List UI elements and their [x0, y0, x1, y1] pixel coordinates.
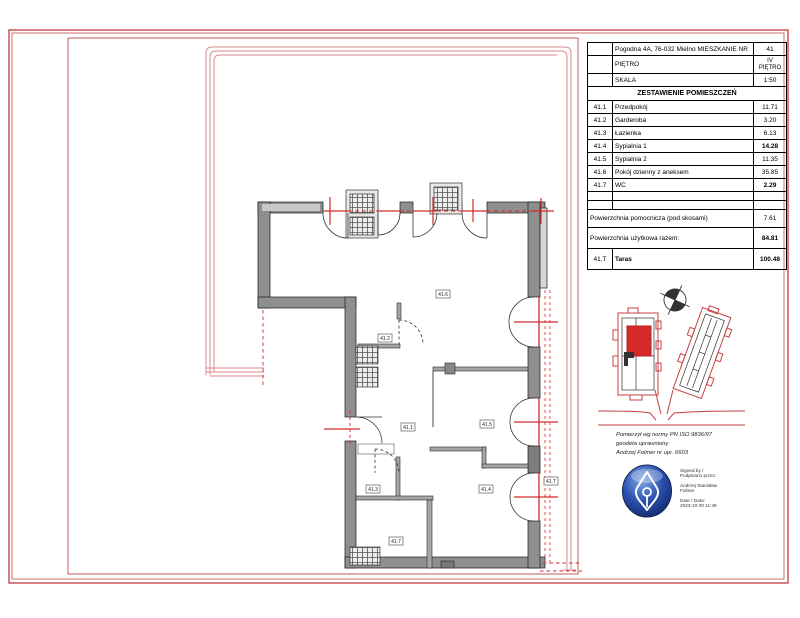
schedule-header: ZESTAWIENIE POMIESZCZEŃ — [588, 87, 787, 101]
row-area: 3.20 — [754, 114, 787, 127]
table-row-empty — [588, 201, 787, 210]
row-no: 41.2 — [588, 114, 613, 127]
scale-label-cell: SKALA — [613, 74, 754, 87]
table-row: 41.5Sypialnia 211.35 — [588, 153, 787, 166]
site-building-current — [613, 308, 661, 400]
terrace-value: 100.48 — [754, 249, 787, 270]
row-no: 41.7 — [588, 179, 613, 192]
scale-value-cell: 1:50 — [754, 74, 787, 87]
row-no: 41.3 — [588, 127, 613, 140]
room-label-bedroom2: 41.5 — [480, 420, 494, 428]
compass-icon — [654, 279, 697, 322]
room-label-wardrobe-text: 41.2 — [380, 336, 390, 342]
surveyor-line-2: geodeta uprawniony — [616, 440, 712, 449]
room-schedule-table: Pogodna 4A, 76-032 Mielno MIESZKANIE NR4… — [587, 42, 787, 270]
table-row: 41.3Łazienka6.13 — [588, 127, 787, 140]
signature-text: Signed by / Podpisano przez: Andrzej Sta… — [680, 463, 717, 512]
table-row: 41.6Pokój dzienny z aneksem35.85 — [588, 166, 787, 179]
signer-name-line2: Folmer — [680, 488, 717, 493]
row-no: 41.6 — [588, 166, 613, 179]
room-label-wc: 41.7 — [389, 537, 403, 545]
room-labels: 41.6 41.2 41.1 41.5 41.3 41.4 41.T 41.7 — [366, 290, 558, 545]
terrace-outline — [206, 47, 576, 570]
site-building-neighbor — [668, 302, 736, 400]
terrace-no: 41.T — [588, 249, 613, 270]
digital-signature-stamp: Signed by / Podpisano przez: Andrzej Sta… — [621, 463, 717, 519]
row-name: Garderoba — [613, 114, 754, 127]
surveyor-note: Pomierzył wg normy PN ISO 9836/97 geodet… — [616, 431, 712, 458]
row-no: 41.4 — [588, 140, 613, 153]
room-label-living-text: 41.6 — [438, 292, 448, 298]
row-no: 41.5 — [588, 153, 613, 166]
surveyor-line-1: Pomierzył wg normy PN ISO 9836/97 — [616, 431, 712, 440]
row-name: Pokój dzienny z aneksem — [613, 166, 754, 179]
room-label-bedroom1-text: 41.4 — [481, 487, 491, 493]
room-label-bath-text: 41.3 — [368, 487, 378, 493]
total-area-value: 84.81 — [754, 228, 787, 249]
signature-date-value: 2023-10-30 11:49 — [680, 503, 717, 508]
row-area: 2.29 — [754, 179, 787, 192]
exterior-walls — [258, 202, 547, 568]
room-label-terrace-text: 41.T — [546, 479, 556, 485]
signed-by-line2: Podpisano przez: — [680, 473, 717, 478]
title-block: Pogodna 4A, 76-032 Mielno MIESZKANIE NR4… — [587, 42, 787, 270]
room-label-wardrobe: 41.2 — [378, 334, 392, 342]
room-label-wc-text: 41.7 — [391, 539, 401, 545]
shaft-hatches — [346, 183, 462, 568]
room-label-bedroom2-text: 41.5 — [482, 422, 492, 428]
room-label-bedroom1: 41.4 — [479, 485, 493, 493]
room-label-hall-text: 41.1 — [403, 425, 413, 431]
terrace-name: Taras — [613, 249, 754, 270]
table-row: 41.4Sypialnia 114.28 — [588, 140, 787, 153]
row-name: Przedpokój — [613, 101, 754, 114]
aux-area-label: Powierzchnia pomocnicza (pod skosami) — [588, 210, 754, 228]
table-row: 41.7WC2.29 — [588, 179, 787, 192]
row-area: 14.28 — [754, 140, 787, 153]
row-area: 35.85 — [754, 166, 787, 179]
address-cell: Pogodna 4A, 76-032 Mielno MIESZKANIE NR — [613, 43, 754, 56]
room-label-hall: 41.1 — [401, 423, 415, 431]
interior-walls — [356, 303, 528, 568]
aux-area-value: 7.61 — [754, 210, 787, 228]
row-area: 11.35 — [754, 153, 787, 166]
signature-pen-icon — [621, 463, 673, 519]
row-name: Sypialnia 1 — [613, 140, 754, 153]
apartment-number-cell: 41 — [754, 43, 787, 56]
table-row: 41.1Przedpokój11.71 — [588, 101, 787, 114]
row-name: Łazienka — [613, 127, 754, 140]
floor-value-cell: IV PIĘTRO — [754, 56, 787, 74]
total-area-label: Powierzchnia użytkowa razem: — [588, 228, 754, 249]
row-area: 11.71 — [754, 101, 787, 114]
table-row: 41.2Garderoba3.20 — [588, 114, 787, 127]
room-label-terrace: 41.T — [544, 477, 558, 485]
row-name: Sypialnia 2 — [613, 153, 754, 166]
surveyor-line-3: Andrzej Folmer nr upr. 6603 — [616, 449, 712, 458]
table-row-empty — [588, 192, 787, 201]
drawing-sheet: 41.6 41.2 41.1 41.5 41.3 41.4 41.T 41.7 — [0, 0, 800, 618]
floor-label-cell: PIĘTRO — [613, 56, 754, 74]
row-name: WC — [613, 179, 754, 192]
room-label-living: 41.6 — [436, 290, 450, 298]
row-area: 6.13 — [754, 127, 787, 140]
room-label-bath: 41.3 — [366, 485, 380, 493]
row-no: 41.1 — [588, 101, 613, 114]
site-plan — [598, 302, 745, 425]
